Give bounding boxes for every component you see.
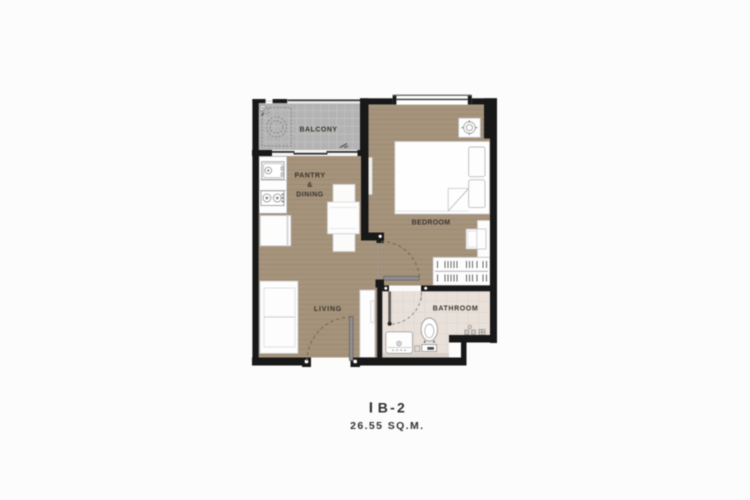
svg-text:&: & <box>307 182 313 189</box>
svg-text:26.55 SQ.M.: 26.55 SQ.M. <box>350 420 424 432</box>
svg-text:BATHROOM: BATHROOM <box>433 306 479 313</box>
svg-text:B-2: B-2 <box>378 400 407 416</box>
svg-text:BALCONY: BALCONY <box>299 127 337 134</box>
svg-text:PANTRY: PANTRY <box>295 173 326 180</box>
svg-text:DINING: DINING <box>296 192 324 199</box>
svg-text:BEDROOM: BEDROOM <box>412 220 451 227</box>
svg-text:LIVING: LIVING <box>314 306 342 313</box>
